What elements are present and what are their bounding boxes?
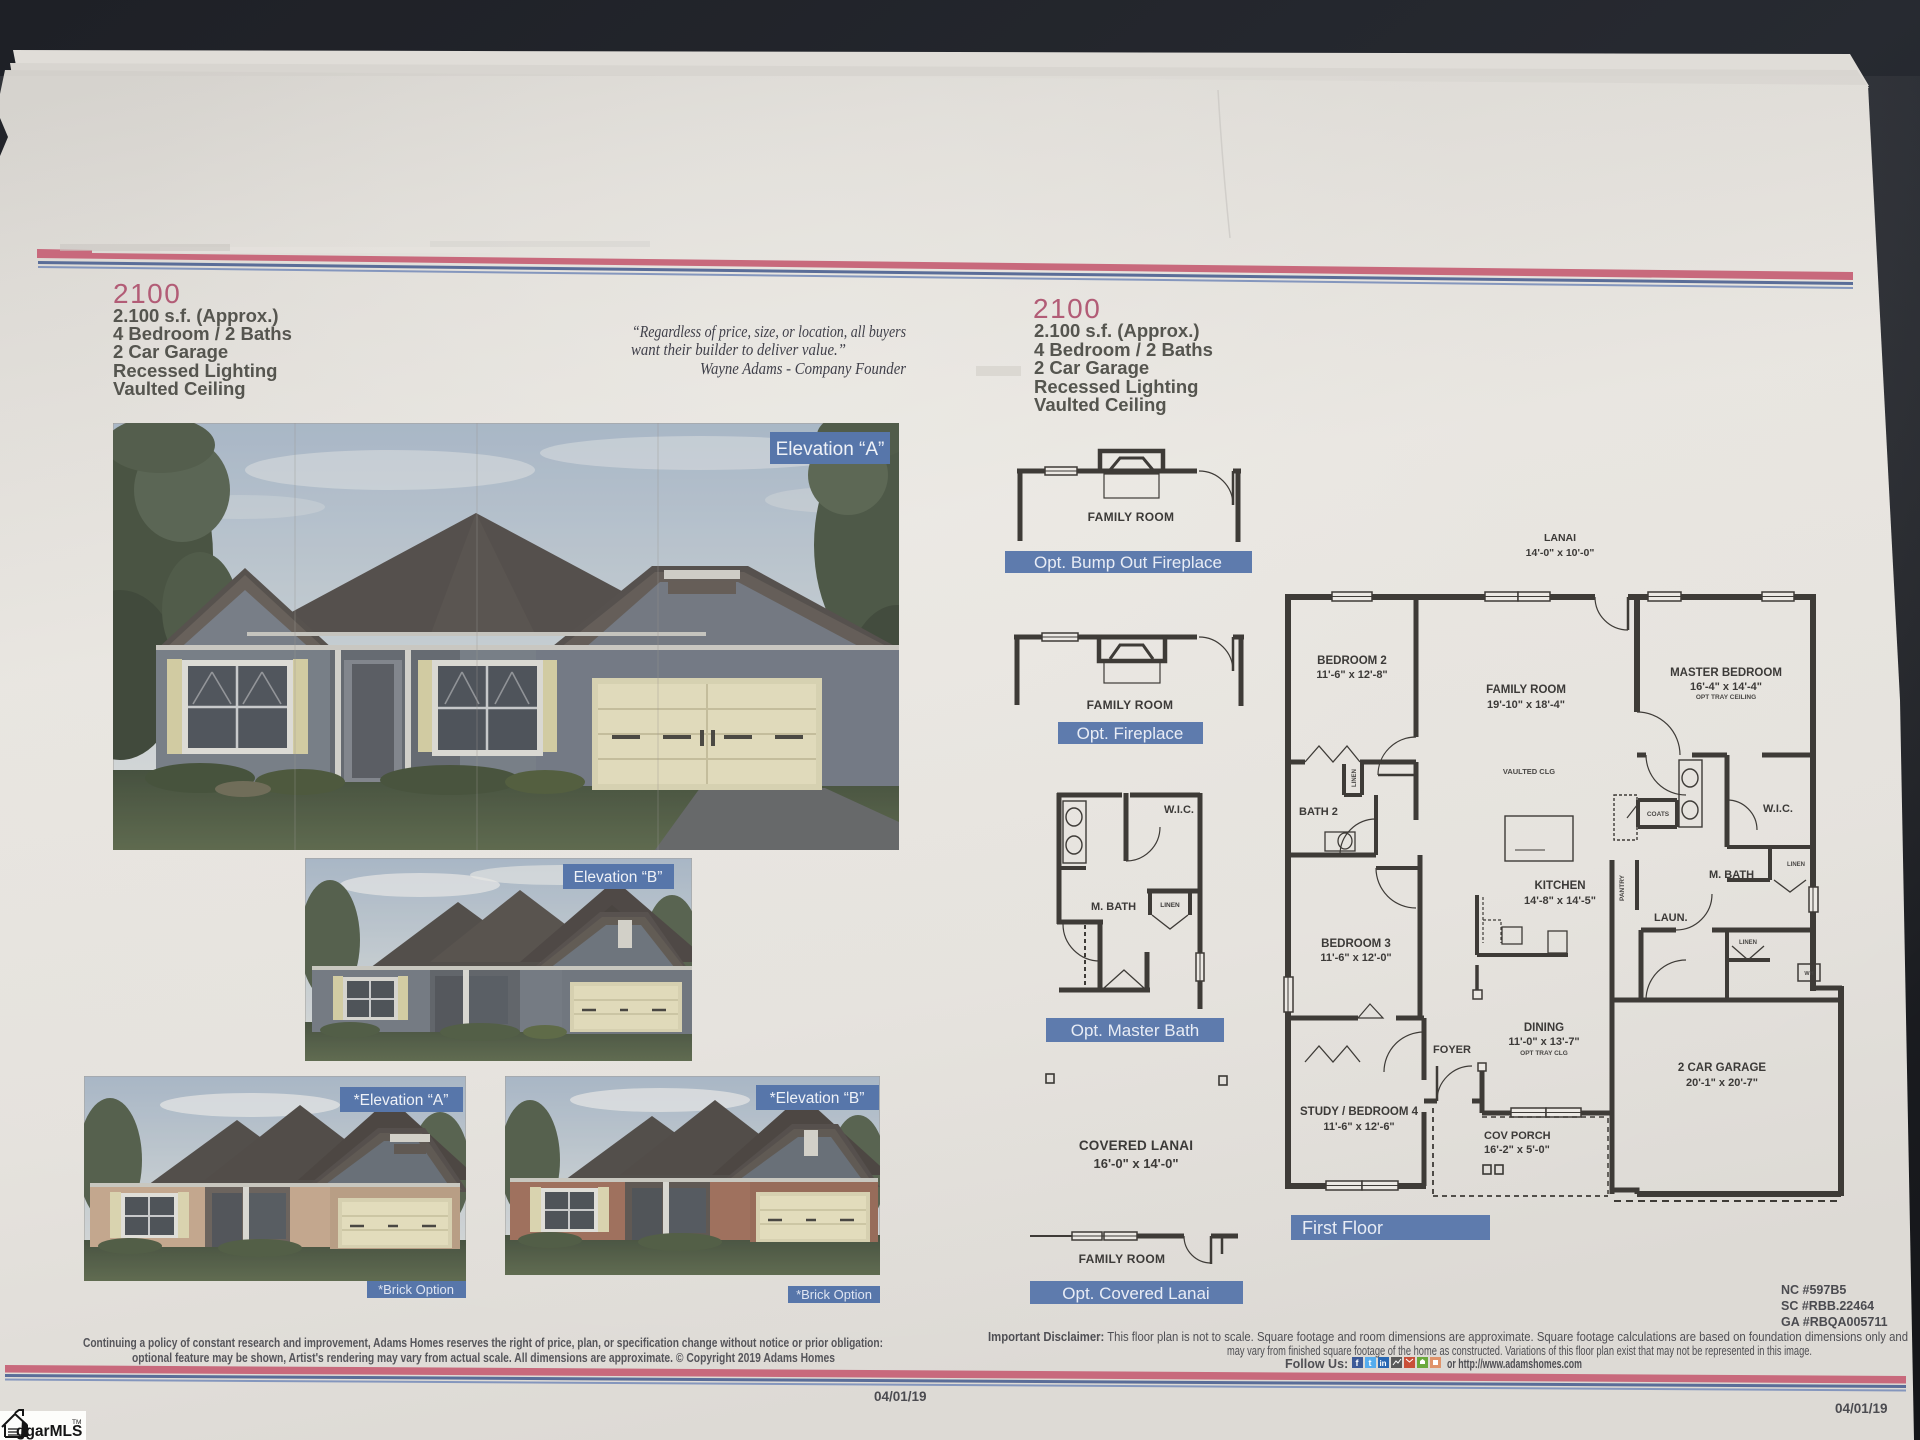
svg-text:LINEN: LINEN [1739,940,1757,946]
svg-text:TM: TM [72,1419,81,1426]
svg-text:11'-0" x 13'-7": 11'-0" x 13'-7" [1508,1036,1579,1048]
svg-text:BATH 2: BATH 2 [1299,806,1338,818]
svg-text:*Elevation “A”: *Elevation “A” [354,1092,449,1109]
svg-text:16'-4" x 14'-4": 16'-4" x 14'-4" [1690,681,1762,693]
svg-text:Elevation “B”: Elevation “B” [574,869,663,886]
svg-text:11'-6" x 12'-0": 11'-6" x 12'-0" [1320,952,1391,964]
svg-text:BEDROOM 2: BEDROOM 2 [1317,655,1387,667]
svg-text:11'-6" x 12'-8": 11'-6" x 12'-8" [1316,669,1387,681]
svg-text:14'-0" x 10'-0": 14'-0" x 10'-0" [1526,547,1595,559]
svg-text:t: t [1369,1358,1372,1368]
svg-text:FOYER: FOYER [1433,1044,1471,1056]
svg-text:14'-8" x 14'-5": 14'-8" x 14'-5" [1524,895,1596,907]
svg-text:SC #RBB.22464: SC #RBB.22464 [1781,1299,1874,1313]
svg-text:VAULTED CLG: VAULTED CLG [1503,767,1555,776]
svg-text:Vaulted Ceiling: Vaulted Ceiling [113,378,246,399]
svg-text:Wayne Adams - Company Founder: Wayne Adams - Company Founder [700,359,906,378]
svg-text:W.I.C.: W.I.C. [1164,804,1194,816]
svg-text:BEDROOM 3: BEDROOM 3 [1321,938,1391,950]
svg-text:04/01/19: 04/01/19 [874,1389,927,1404]
svg-text:W.I.C.: W.I.C. [1763,803,1793,815]
svg-text:FAMILY ROOM: FAMILY ROOM [1079,1252,1166,1266]
svg-text:2 Car Garage: 2 Car Garage [1034,357,1149,378]
svg-text:19'-10" x 18'-4": 19'-10" x 18'-4" [1487,699,1565,711]
svg-text:LINEN: LINEN [1160,902,1180,909]
svg-text:COATS: COATS [1647,811,1670,818]
svg-text:LAUN.: LAUN. [1654,912,1688,924]
svg-text:Important Disclaimer: This flo: Important Disclaimer: This floor plan is… [988,1329,1908,1344]
svg-text:OPT TRAY CLG: OPT TRAY CLG [1520,1050,1568,1057]
svg-text:Opt. Fireplace: Opt. Fireplace [1077,724,1184,743]
svg-text:2.100 s.f. (Approx.): 2.100 s.f. (Approx.) [1034,320,1200,341]
svg-text:in: in [1379,1359,1386,1368]
svg-text:FAMILY ROOM: FAMILY ROOM [1088,510,1175,524]
svg-text:Vaulted Ceiling: Vaulted Ceiling [1034,394,1167,415]
svg-text:optional feature may be shown,: optional feature may be shown, Artist's … [132,1350,835,1365]
svg-text:16'-2" x 5'-0": 16'-2" x 5'-0" [1484,1144,1550,1156]
svg-text:OPT TRAY CEILING: OPT TRAY CEILING [1696,694,1756,701]
svg-text:NC #597B5: NC #597B5 [1781,1283,1846,1297]
svg-text:16'-0" x 14'-0": 16'-0" x 14'-0" [1093,1156,1178,1171]
svg-text:MASTER BEDROOM: MASTER BEDROOM [1670,667,1782,679]
svg-text:Opt. Master Bath: Opt. Master Bath [1071,1021,1200,1040]
svg-text:LINEN: LINEN [1787,862,1805,868]
svg-text:11'-6" x 12'-6": 11'-6" x 12'-6" [1323,1121,1394,1133]
svg-text:First Floor: First Floor [1302,1218,1383,1238]
svg-text:COV PORCH: COV PORCH [1484,1130,1551,1142]
svg-text:Follow Us:: Follow Us: [1285,1357,1348,1371]
svg-text:Opt. Covered Lanai: Opt. Covered Lanai [1062,1284,1209,1303]
svg-text:*Brick Option: *Brick Option [796,1287,872,1302]
svg-text:M. BATH: M. BATH [1091,901,1136,913]
svg-text:LANAI: LANAI [1544,532,1576,544]
svg-text:DINING: DINING [1524,1022,1564,1034]
svg-text:or http://www.adamshomes.com: or http://www.adamshomes.com [1447,1357,1582,1371]
svg-text:LINEN: LINEN [1352,769,1358,787]
svg-text:04/01/19: 04/01/19 [1835,1401,1888,1416]
svg-text:PANTRY: PANTRY [1619,874,1626,901]
svg-text:M. BATH: M. BATH [1709,869,1754,881]
svg-text:FAMILY ROOM: FAMILY ROOM [1486,684,1566,696]
svg-text:COVERED LANAI: COVERED LANAI [1079,1138,1193,1153]
svg-text:FAMILY ROOM: FAMILY ROOM [1087,698,1174,712]
svg-text:WH: WH [1804,971,1813,977]
svg-text:GA #RBQA005711: GA #RBQA005711 [1781,1315,1888,1329]
svg-text:2 Car Garage: 2 Car Garage [113,341,228,362]
svg-text:KITCHEN: KITCHEN [1534,880,1585,892]
svg-text:2 CAR GARAGE: 2 CAR GARAGE [1678,1062,1767,1074]
svg-text:20'-1" x 20'-7": 20'-1" x 20'-7" [1686,1077,1758,1089]
svg-text:“Regardless of price, size, or: “Regardless of price, size, or location,… [632,322,906,341]
svg-text:Opt. Bump Out Fireplace: Opt. Bump Out Fireplace [1034,553,1222,572]
svg-text:Continuing a policy of constan: Continuing a policy of constant research… [83,1335,883,1350]
svg-text:*Brick Option: *Brick Option [378,1282,454,1297]
svg-text:want their builder to deliver: want their builder to deliver value.” [631,340,846,359]
svg-text:*Elevation “B”: *Elevation “B” [770,1090,865,1107]
svg-text:may vary from finished square: may vary from finished square footage of… [1227,1343,1812,1358]
svg-text:Elevation “A”: Elevation “A” [776,439,885,460]
svg-text:STUDY / BEDROOM 4: STUDY / BEDROOM 4 [1300,1106,1419,1118]
